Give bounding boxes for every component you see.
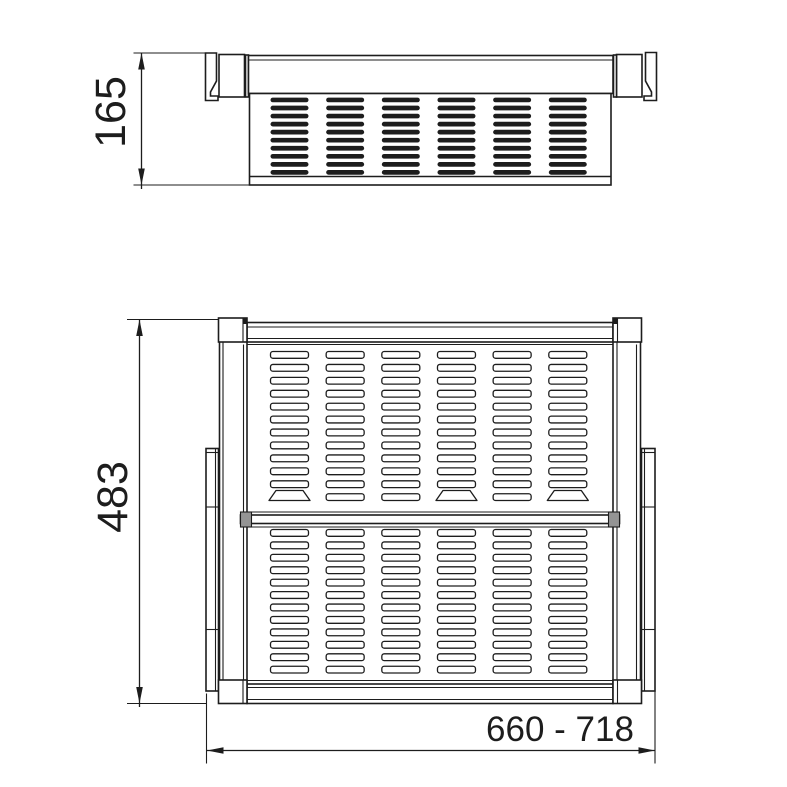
vent-slot bbox=[437, 592, 475, 599]
vent-slot bbox=[437, 530, 475, 537]
vent-slot bbox=[271, 170, 309, 175]
vent-slot bbox=[549, 542, 587, 549]
top-left-corner-tick bbox=[243, 319, 247, 325]
vent-slot bbox=[326, 666, 364, 673]
vent-slot bbox=[326, 604, 364, 611]
front-elevation-view: 165 bbox=[87, 53, 657, 190]
plan-upper-vent-slots bbox=[269, 352, 588, 501]
vent-slot bbox=[493, 530, 531, 537]
vent-slot bbox=[437, 542, 475, 549]
vent-slot bbox=[382, 579, 420, 586]
vent-slot bbox=[382, 154, 420, 159]
vent-slot bbox=[382, 98, 420, 103]
vent-slot bbox=[326, 154, 364, 159]
vent-slot bbox=[437, 364, 475, 371]
vent-slot bbox=[437, 162, 475, 167]
plan-top-view: 483 bbox=[89, 318, 655, 764]
vent-slot bbox=[549, 162, 587, 167]
vent-slot bbox=[271, 455, 309, 462]
vent-slot bbox=[493, 567, 531, 574]
vent-slot bbox=[437, 416, 475, 423]
vent-slot bbox=[382, 629, 420, 636]
width-range-label: 660 - 718 bbox=[486, 710, 634, 749]
vent-slot bbox=[326, 530, 364, 537]
vent-slot bbox=[437, 429, 475, 436]
vent-slot bbox=[493, 617, 531, 624]
bottom-rail-band bbox=[247, 684, 613, 704]
vent-slot bbox=[493, 442, 531, 449]
vent-slot bbox=[549, 554, 587, 561]
vent-slot bbox=[271, 403, 309, 410]
vent-slot bbox=[493, 455, 531, 462]
vent-slot bbox=[437, 579, 475, 586]
vent-slot bbox=[549, 530, 587, 537]
arrow-left-icon bbox=[207, 747, 224, 754]
vent-slot bbox=[549, 130, 587, 135]
vent-slot bbox=[326, 542, 364, 549]
vent-slot bbox=[382, 542, 420, 549]
vent-slot bbox=[326, 130, 364, 135]
vent-slot bbox=[382, 138, 420, 143]
vent-slot bbox=[271, 554, 309, 561]
vent-slot bbox=[549, 666, 587, 673]
vent-slot bbox=[326, 352, 364, 359]
left-hook bbox=[206, 53, 219, 101]
middle-divider bbox=[241, 512, 620, 527]
right-slide-rail bbox=[642, 449, 656, 692]
vent-slot bbox=[493, 114, 531, 119]
vent-slot bbox=[382, 617, 420, 624]
vent-slot bbox=[382, 390, 420, 397]
vent-slot bbox=[271, 468, 309, 475]
vent-slot bbox=[271, 442, 309, 449]
vent-slot bbox=[437, 442, 475, 449]
vent-slot bbox=[493, 162, 531, 167]
vent-slot bbox=[549, 364, 587, 371]
vent-slot bbox=[437, 114, 475, 119]
vent-slot bbox=[382, 468, 420, 475]
vent-slot bbox=[326, 429, 364, 436]
vent-slot bbox=[382, 442, 420, 449]
vent-slot bbox=[493, 377, 531, 384]
vent-slot bbox=[549, 567, 587, 574]
arrow-down-icon bbox=[138, 169, 145, 186]
vent-slot bbox=[271, 617, 309, 624]
vent-slot bbox=[326, 455, 364, 462]
drawing-svg: 165 483 bbox=[0, 0, 787, 787]
vent-slot bbox=[549, 146, 587, 151]
front-height-label: 165 bbox=[87, 76, 135, 148]
vent-slot bbox=[382, 530, 420, 537]
vent-slot bbox=[382, 481, 420, 488]
vent-slot bbox=[382, 114, 420, 119]
vent-slot bbox=[326, 629, 364, 636]
vent-slot bbox=[382, 377, 420, 384]
vent-slot bbox=[326, 641, 364, 648]
vent-slot bbox=[271, 604, 309, 611]
vent-slot bbox=[549, 654, 587, 661]
vent-slot bbox=[437, 567, 475, 574]
vent-slot bbox=[549, 170, 587, 175]
vent-slot bbox=[271, 114, 309, 119]
right-slide-body bbox=[642, 449, 656, 692]
vent-slot bbox=[493, 592, 531, 599]
vent-slot bbox=[382, 364, 420, 371]
arrow-right-icon bbox=[639, 747, 656, 754]
vent-slot bbox=[493, 554, 531, 561]
vent-slot bbox=[437, 641, 475, 648]
vent-slot bbox=[271, 592, 309, 599]
vent-slot bbox=[549, 138, 587, 143]
vent-slot bbox=[549, 98, 587, 103]
vent-slot bbox=[271, 629, 309, 636]
vent-slot bbox=[382, 641, 420, 648]
vent-slot bbox=[326, 416, 364, 423]
vent-slot bbox=[493, 122, 531, 127]
vent-slot bbox=[326, 170, 364, 175]
vent-slot bbox=[549, 629, 587, 636]
vent-slot bbox=[326, 162, 364, 167]
right-hook bbox=[644, 53, 657, 101]
vent-slot bbox=[549, 455, 587, 462]
vent-slot bbox=[271, 481, 309, 488]
vent-slot bbox=[326, 390, 364, 397]
vent-slot bbox=[493, 364, 531, 371]
technical-drawing-canvas: 165 483 bbox=[0, 0, 787, 787]
vent-slot bbox=[382, 162, 420, 167]
vent-slot bbox=[549, 352, 587, 359]
vent-slot bbox=[437, 98, 475, 103]
vent-slot bbox=[549, 442, 587, 449]
vent-slot bbox=[493, 352, 531, 359]
vent-slot bbox=[549, 390, 587, 397]
vent-slot bbox=[382, 554, 420, 561]
vent-slot bbox=[382, 146, 420, 151]
vent-slot bbox=[437, 468, 475, 475]
vent-slot bbox=[549, 604, 587, 611]
vent-slot bbox=[493, 604, 531, 611]
vent-slot bbox=[326, 364, 364, 371]
vent-slot bbox=[549, 403, 587, 410]
left-slide-rail bbox=[206, 449, 219, 692]
vent-slot bbox=[549, 617, 587, 624]
vent-slot bbox=[271, 429, 309, 436]
vent-slot bbox=[271, 530, 309, 537]
vent-slot bbox=[326, 654, 364, 661]
top-right-corner-tick bbox=[613, 319, 617, 325]
vent-slot bbox=[549, 122, 587, 127]
plan-depth-label: 483 bbox=[89, 461, 137, 533]
vent-slot bbox=[382, 604, 420, 611]
vent-slot bbox=[437, 481, 475, 488]
vent-slot bbox=[382, 352, 420, 359]
vent-slot bbox=[549, 481, 587, 488]
arrow-down-icon bbox=[136, 687, 143, 704]
vent-slot bbox=[326, 403, 364, 410]
vent-slot bbox=[437, 654, 475, 661]
vent-slot bbox=[382, 106, 420, 111]
vent-slot bbox=[271, 416, 309, 423]
arrow-up-icon bbox=[138, 53, 145, 70]
vent-slot bbox=[271, 641, 309, 648]
vent-slot bbox=[549, 579, 587, 586]
vent-slot bbox=[326, 592, 364, 599]
arrow-up-icon bbox=[136, 320, 143, 337]
left-slide-body bbox=[206, 449, 219, 692]
vent-slot bbox=[549, 592, 587, 599]
vent-slot bbox=[493, 154, 531, 159]
vent-slot bbox=[493, 481, 531, 488]
vent-slot bbox=[493, 629, 531, 636]
vent-slot bbox=[326, 494, 364, 501]
vent-slot bbox=[437, 154, 475, 159]
divider-right-cap bbox=[609, 512, 620, 527]
vent-slot bbox=[271, 390, 309, 397]
vent-slot bbox=[437, 138, 475, 143]
vent-slot-trapezoid bbox=[436, 491, 477, 501]
vent-slot bbox=[326, 468, 364, 475]
vent-slot bbox=[437, 403, 475, 410]
vent-slot bbox=[382, 170, 420, 175]
vent-slot bbox=[493, 654, 531, 661]
vent-slot bbox=[271, 579, 309, 586]
vent-slot bbox=[437, 146, 475, 151]
right-rail-end-cap bbox=[614, 55, 617, 97]
vent-slot bbox=[493, 666, 531, 673]
vent-slot bbox=[549, 106, 587, 111]
vent-slot bbox=[437, 170, 475, 175]
vent-slot bbox=[493, 579, 531, 586]
vent-slot bbox=[549, 416, 587, 423]
vent-slot bbox=[382, 567, 420, 574]
vent-slot bbox=[326, 377, 364, 384]
divider-band bbox=[241, 515, 620, 524]
vent-slot bbox=[326, 442, 364, 449]
vent-slot bbox=[326, 106, 364, 111]
vent-slot bbox=[493, 170, 531, 175]
vent-slot bbox=[382, 130, 420, 135]
vent-slot bbox=[437, 106, 475, 111]
plan-lower-vent-slots bbox=[271, 530, 587, 674]
vent-slot bbox=[326, 554, 364, 561]
vent-slot bbox=[326, 114, 364, 119]
plan-bottom-rail bbox=[247, 681, 613, 704]
vent-slot bbox=[271, 364, 309, 371]
vent-slot bbox=[382, 666, 420, 673]
vent-slot bbox=[326, 122, 364, 127]
vent-slot bbox=[493, 494, 531, 501]
vent-slot bbox=[271, 542, 309, 549]
vent-slot bbox=[326, 567, 364, 574]
vent-slot bbox=[382, 654, 420, 661]
vent-slot bbox=[549, 429, 587, 436]
vent-slot bbox=[549, 114, 587, 119]
vent-slot bbox=[382, 494, 420, 501]
top-rail-band bbox=[247, 323, 613, 343]
vent-slot bbox=[271, 567, 309, 574]
plan-depth-dimension: 483 bbox=[89, 320, 219, 708]
vent-slot bbox=[271, 352, 309, 359]
vent-slot bbox=[326, 617, 364, 624]
vent-slot bbox=[271, 130, 309, 135]
vent-slot bbox=[493, 138, 531, 143]
vent-slot bbox=[493, 542, 531, 549]
vent-slot bbox=[437, 352, 475, 359]
vent-slot bbox=[549, 641, 587, 648]
vent-slot bbox=[437, 617, 475, 624]
vent-slot bbox=[493, 146, 531, 151]
vent-slot bbox=[382, 122, 420, 127]
vent-slot bbox=[382, 416, 420, 423]
vent-slot bbox=[437, 390, 475, 397]
vent-slot bbox=[326, 481, 364, 488]
vent-slot bbox=[326, 146, 364, 151]
vent-slot bbox=[382, 455, 420, 462]
vent-slot bbox=[271, 106, 309, 111]
vent-slot bbox=[549, 154, 587, 159]
vent-slot bbox=[493, 98, 531, 103]
vent-slot bbox=[271, 377, 309, 384]
vent-slot bbox=[437, 604, 475, 611]
vent-slot bbox=[326, 98, 364, 103]
vent-slot-trapezoid bbox=[547, 491, 588, 501]
vent-slot bbox=[437, 666, 475, 673]
left-bracket-block bbox=[219, 55, 245, 98]
vent-slot bbox=[271, 98, 309, 103]
front-top-rail bbox=[249, 56, 614, 94]
vent-slot bbox=[493, 106, 531, 111]
vent-slot bbox=[271, 666, 309, 673]
vent-slot bbox=[271, 138, 309, 143]
vent-slot bbox=[493, 641, 531, 648]
vent-slot bbox=[271, 146, 309, 151]
vent-slot bbox=[437, 377, 475, 384]
vent-slot bbox=[493, 130, 531, 135]
vent-slot bbox=[271, 162, 309, 167]
vent-slot bbox=[493, 390, 531, 397]
vent-slot bbox=[493, 403, 531, 410]
vent-slot bbox=[382, 403, 420, 410]
vent-slot bbox=[549, 377, 587, 384]
vent-slot bbox=[549, 468, 587, 475]
right-bracket-block bbox=[617, 55, 643, 98]
vent-slot bbox=[437, 455, 475, 462]
vent-slot bbox=[437, 130, 475, 135]
vent-slot-trapezoid bbox=[269, 491, 310, 501]
vent-slot bbox=[382, 592, 420, 599]
divider-left-cap bbox=[241, 512, 252, 527]
vent-slot bbox=[437, 629, 475, 636]
vent-slot bbox=[493, 468, 531, 475]
vent-slot bbox=[326, 579, 364, 586]
plan-top-rail bbox=[247, 323, 613, 345]
vent-slot bbox=[493, 429, 531, 436]
vent-slot bbox=[271, 122, 309, 127]
vent-slot bbox=[326, 138, 364, 143]
vent-slot bbox=[271, 154, 309, 159]
vent-slot bbox=[437, 122, 475, 127]
vent-slot bbox=[271, 654, 309, 661]
vent-slot bbox=[437, 554, 475, 561]
vent-slot bbox=[493, 416, 531, 423]
vent-slot bbox=[382, 429, 420, 436]
